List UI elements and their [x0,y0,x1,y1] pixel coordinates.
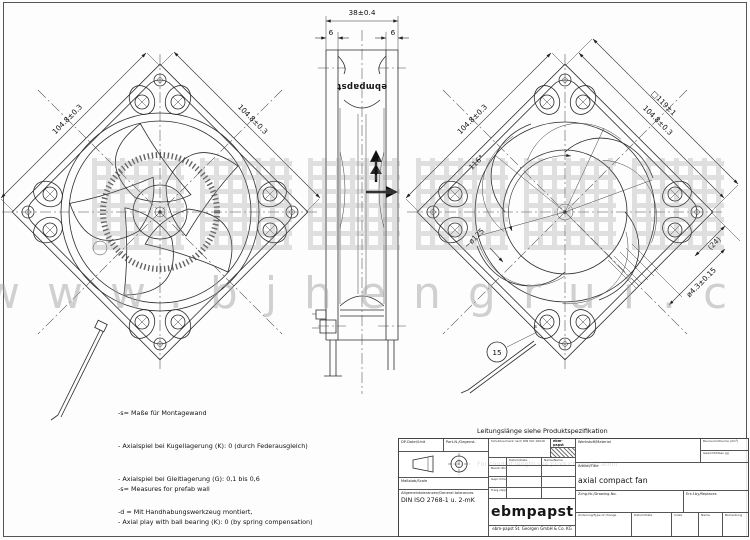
back-view-drawing: 116° ~ø125 104.8±0.3 104.8±0.3 □119±1 (2… [404,36,750,456]
checked-name-cell [542,477,576,488]
article-cell: Artikel/Title axial compact fan [576,463,748,491]
back-dimension-lower-right: (24) ø4.3±0.15 [654,212,740,305]
remark-label: Bemerkung [723,513,748,536]
approved-date-cell [507,488,542,499]
drawing-no-label: Zchg-Nr./Drawing-No. [576,491,684,513]
projection-circle-icon [448,453,470,475]
front-impeller-blades [62,119,241,305]
drawing-sheet: 104.8±0.3 104.8±0.3 38±0.4 [0,0,750,540]
back-centerlines [407,54,723,370]
volume-label: Bauraum/Volume (dm³) [701,439,748,451]
drawn-name-cell [542,466,576,477]
scale-label: Maßstab/Scale [399,478,489,490]
note-line: - Axial play with ball bearing (K): 0 (b… [118,517,367,528]
side-dimension-depth: 38±0.4 [326,8,398,50]
dim-back-hole-dia: ø4.3±0.15 [684,265,718,299]
tolerance-label: Allgemeintoleranzen/General tolerances [401,491,486,495]
front-lead-wire [51,320,107,420]
note-line: -s= Maße für Montagewand [118,408,373,419]
name-header: Name/Name [542,458,576,466]
note-line: - Axialspiel bei Kugellagerung (K): 0 (d… [118,441,373,452]
side-terminal-connector [312,310,336,333]
date-header: Datum/Date [507,458,542,466]
projection-cone-icon [413,456,433,472]
side-dimension-flange-left: 6 [315,28,349,50]
approved-name-cell [542,488,576,499]
front-centerlines [2,54,318,370]
article-value: axial compact fan [578,477,746,486]
checked-date-cell [507,477,542,488]
dim-back-offset: (24) [706,235,723,252]
part-label: Part-N./Gegenst. [444,439,489,452]
approved-label: Freig./Approved [489,488,507,499]
small-logo: ebm-papst [551,439,576,448]
index-label: Index [672,513,699,536]
drawn-label: Bearb./Drawn [489,466,507,477]
dim-side-depth: 38±0.4 [348,8,375,17]
drawn-date-cell [507,466,542,477]
balloon-item-15: 15 s [487,324,537,362]
conduit-note-de: Leitungslänge siehe Produktspezifikation [477,426,617,437]
dim-side-flange-left: 6 [329,28,334,37]
copyright-stamp [551,448,576,458]
tolerance-cell: Allgemeintoleranzen/General tolerances D… [399,490,489,536]
back-blades [468,101,680,319]
mass-label: Gewicht/Mass (g) [701,451,748,463]
front-view-drawing: 104.8±0.3 104.8±0.3 [0,36,324,442]
replaces-label: Ers.f.by/Replaces [684,491,748,513]
file-label: DP-Datei/Unit [399,439,444,452]
change-label: Änderung/Type of change [576,513,632,536]
side-view-drawing: 38±0.4 6 6 ebmpapst [310,4,414,404]
dim-back-circle: ~ø125 [462,226,486,250]
projection-symbols [399,452,489,478]
copyright-note: Schutzvermerk nach DIN ISO 16016 [489,439,551,458]
change-name-label: Name [699,513,723,536]
checked-label: Gepr./Checked [489,477,507,488]
material-label: Werkstoff/Material [576,439,701,463]
spacer-cell [489,458,507,466]
tolerance-value: DIN ISO 2768-1 u. 2-mK [401,497,486,504]
company-name: ebm-papst St. Georgen GmbH & Co. KG [489,526,576,536]
airflow-direction-arrows [366,150,398,198]
notes-english: -s= Measures for prefab wall - Axial pla… [118,462,367,540]
back-dimension-circle: ~ø125 [462,226,503,262]
balloon-number: 15 [492,348,501,357]
dim-side-flange-right: 6 [391,28,396,37]
marker-s: s [534,324,537,330]
note-line: -s= Measures for prefab wall [118,484,367,495]
change-date-label: Datum/Date [632,513,672,536]
title-block: DP-Datei/Unit Part-N./Gegenst. Maßstab/S… [398,438,749,537]
company-logo: ebmpapst [489,499,576,526]
article-label: Artikel/Title [578,464,746,468]
